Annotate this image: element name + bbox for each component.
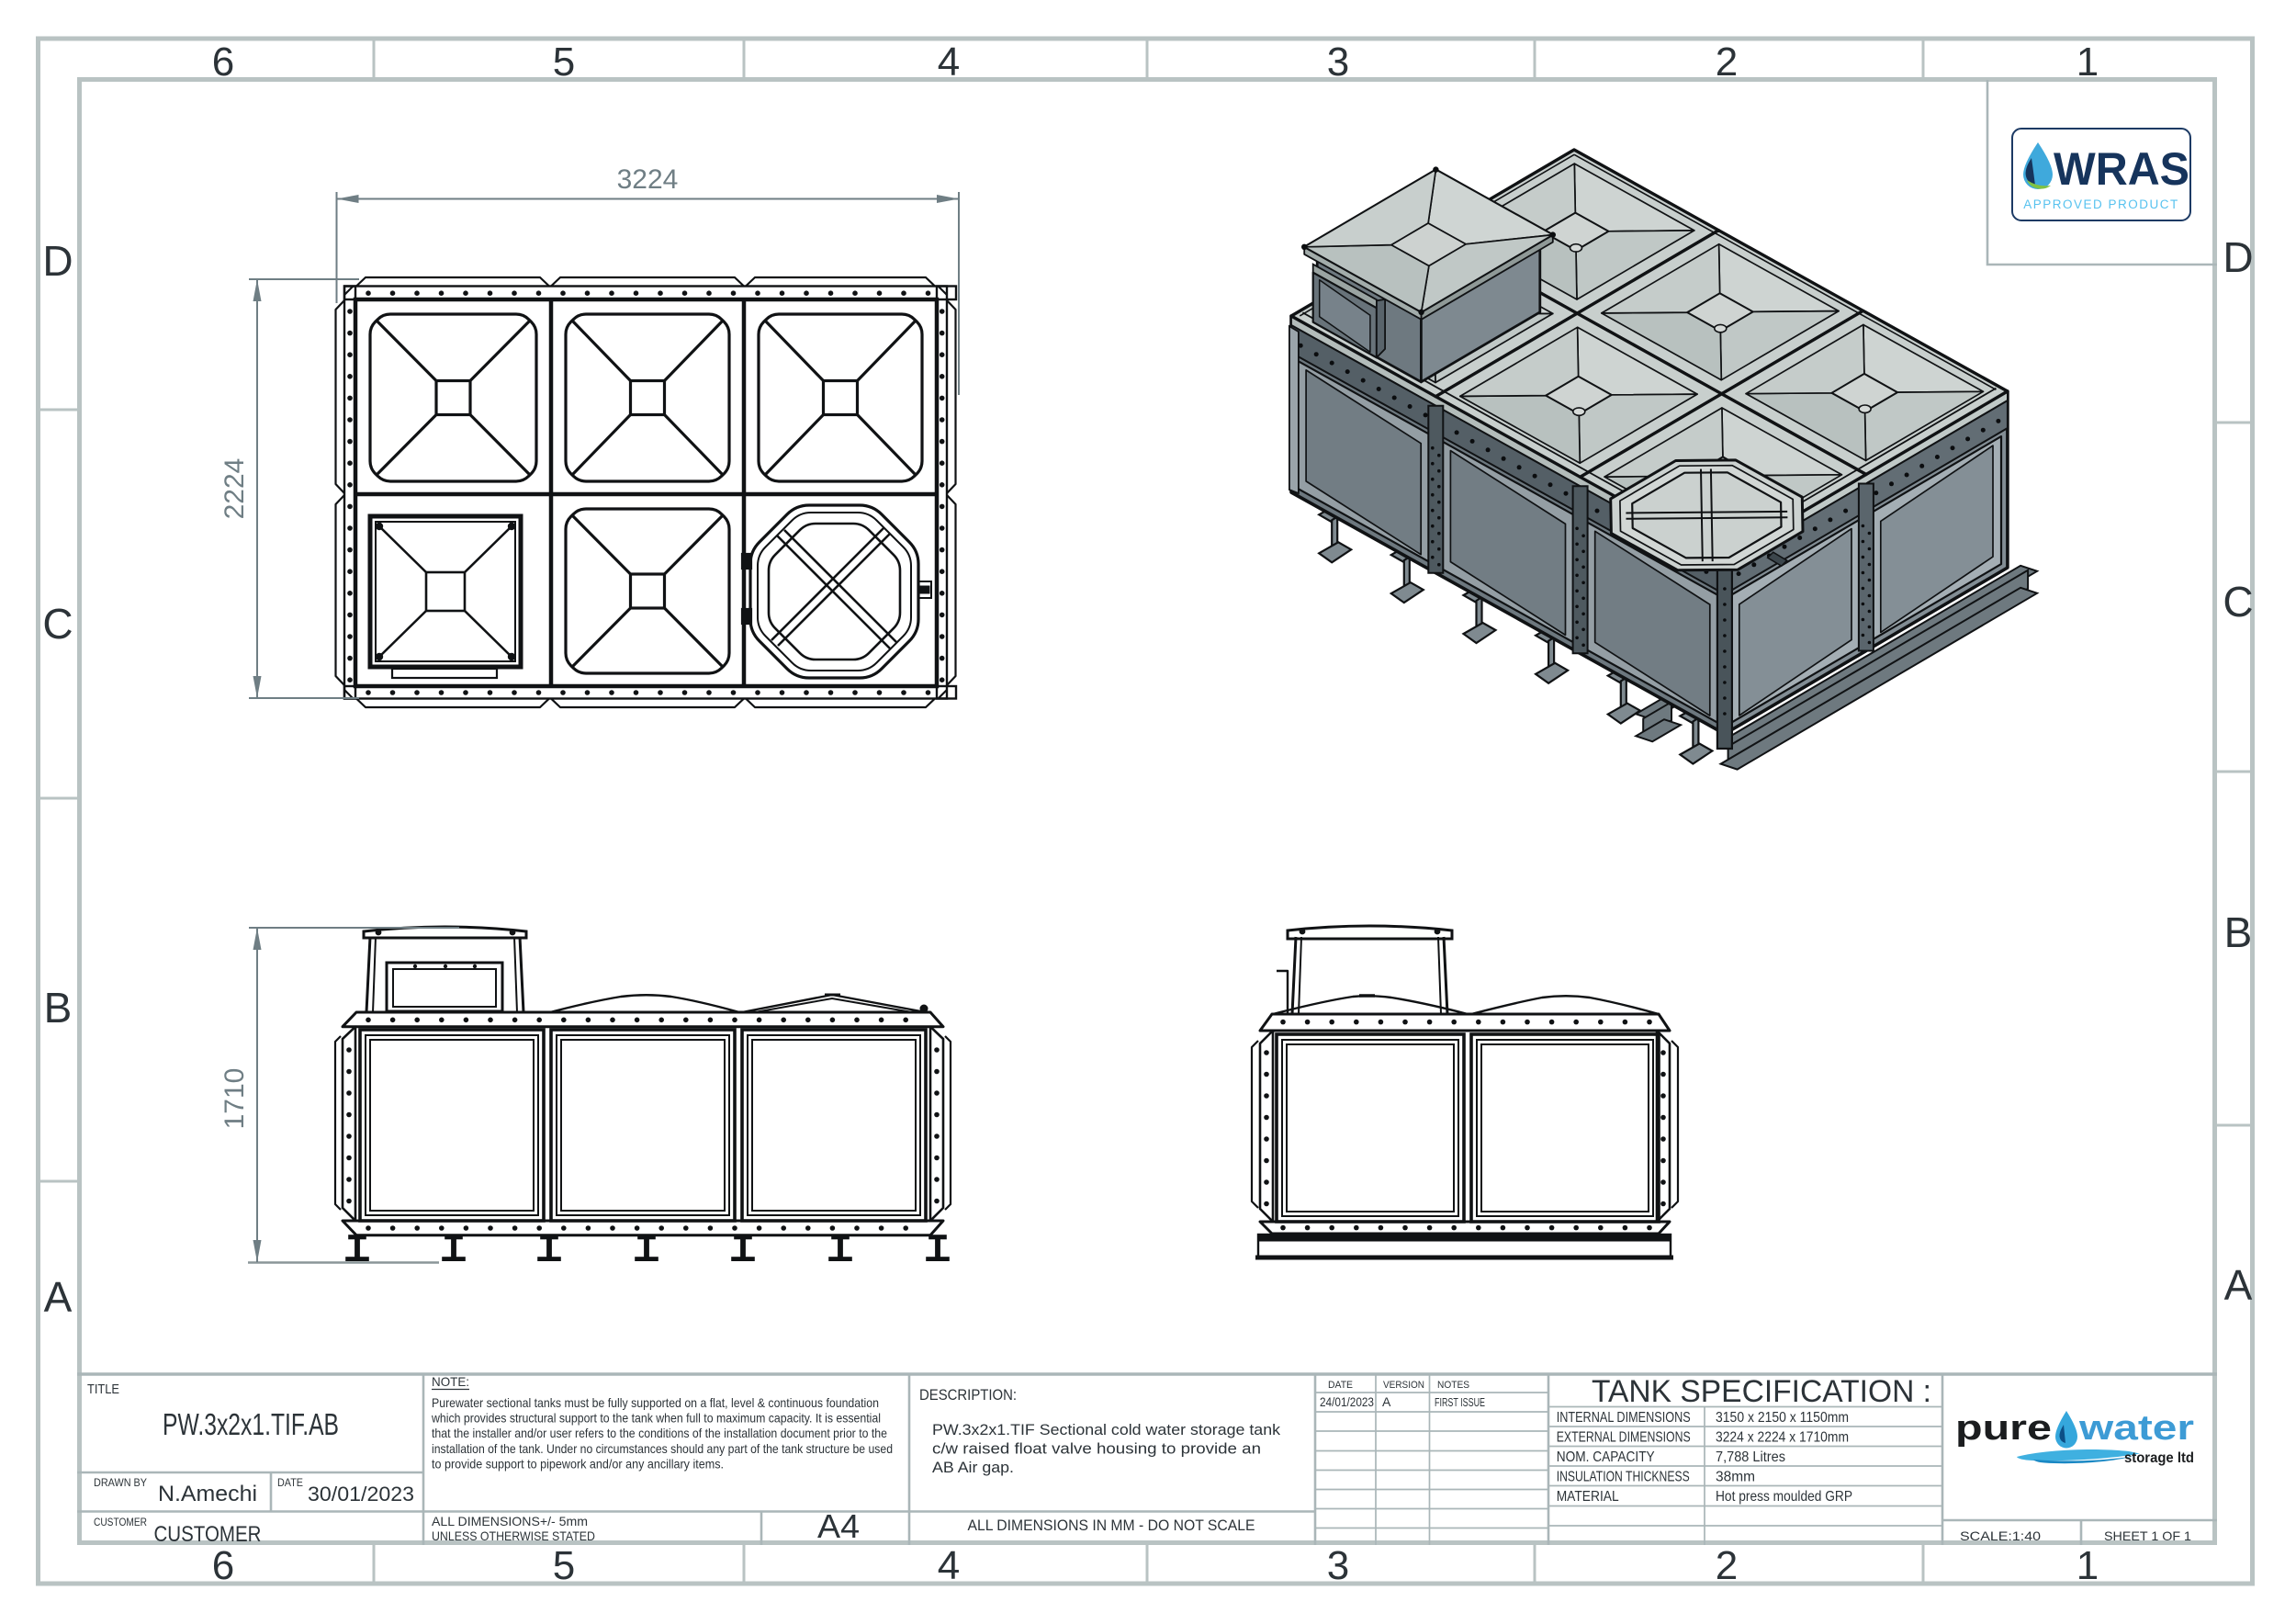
svg-text:1: 1 xyxy=(2077,39,2099,85)
svg-text:CUSTOMER: CUSTOMER xyxy=(154,1522,262,1547)
svg-text:UNLESS OTHERWISE STATED: UNLESS OTHERWISE STATED xyxy=(432,1528,595,1543)
svg-text:A4: A4 xyxy=(817,1507,860,1545)
svg-text:5: 5 xyxy=(553,39,575,85)
svg-text:B: B xyxy=(44,984,73,1032)
svg-text:6: 6 xyxy=(212,39,234,85)
svg-text:D: D xyxy=(2223,233,2253,281)
svg-text:APPROVED PRODUCT: APPROVED PRODUCT xyxy=(2023,197,2179,211)
svg-text:Purewater sectional tanks must: Purewater sectional tanks must be fully … xyxy=(432,1395,879,1410)
svg-text:installation of the tank. Unde: installation of the tank. Under no circu… xyxy=(432,1441,893,1456)
svg-text:24/01/2023: 24/01/2023 xyxy=(1320,1394,1374,1409)
svg-text:PW.3x2x1.TIF.AB: PW.3x2x1.TIF.AB xyxy=(163,1407,339,1441)
svg-text:EXTERNAL DIMENSIONS: EXTERNAL DIMENSIONS xyxy=(1557,1430,1691,1446)
svg-text:5: 5 xyxy=(553,1543,575,1588)
svg-text:c/w raised float valve housing: c/w raised float valve housing to provid… xyxy=(932,1440,1261,1458)
svg-text:AB Air gap.: AB Air gap. xyxy=(932,1459,1014,1476)
svg-text:to provide support to pipework: to provide support to pipework and/or an… xyxy=(432,1456,724,1471)
svg-text:4: 4 xyxy=(938,1543,960,1588)
svg-text:DATE: DATE xyxy=(277,1476,303,1489)
svg-text:A: A xyxy=(1382,1394,1391,1409)
svg-text:4: 4 xyxy=(938,39,960,85)
svg-text:NOTES: NOTES xyxy=(1437,1380,1469,1391)
svg-text:SHEET 1 OF 1: SHEET 1 OF 1 xyxy=(2104,1528,2191,1543)
svg-text:30/01/2023: 30/01/2023 xyxy=(308,1483,414,1506)
svg-text:FIRST ISSUE: FIRST ISSUE xyxy=(1435,1395,1485,1409)
svg-text:which provides structural supp: which provides structural support to the… xyxy=(431,1411,881,1426)
svg-text:ALL DIMENSIONS IN MM - DO NOT: ALL DIMENSIONS IN MM - DO NOT SCALE xyxy=(968,1517,1255,1534)
svg-text:A: A xyxy=(44,1273,73,1321)
svg-text:water: water xyxy=(2078,1409,2195,1448)
svg-text:that the installer and/or user: that the installer and/or user refers to… xyxy=(432,1426,887,1440)
svg-text:A: A xyxy=(2224,1261,2253,1309)
svg-text:storage ltd: storage ltd xyxy=(2124,1450,2194,1466)
svg-text:PW.3x2x1.TIF Sectional cold wa: PW.3x2x1.TIF Sectional cold water storag… xyxy=(932,1421,1281,1438)
svg-text:6: 6 xyxy=(212,1543,234,1588)
svg-text:TITLE: TITLE xyxy=(87,1382,119,1397)
svg-text:Hot press moulded GRP: Hot press moulded GRP xyxy=(1716,1489,1852,1505)
svg-text:1710: 1710 xyxy=(219,1068,250,1130)
svg-text:WRAS: WRAS xyxy=(2054,143,2189,195)
svg-text:INTERNAL DIMENSIONS: INTERNAL DIMENSIONS xyxy=(1557,1410,1691,1426)
svg-text:NOTE:: NOTE: xyxy=(432,1374,469,1389)
svg-text:pure: pure xyxy=(1955,1409,2052,1448)
svg-text:CUSTOMER: CUSTOMER xyxy=(94,1516,147,1528)
svg-text:SCALE:1:40: SCALE:1:40 xyxy=(1960,1528,2041,1543)
svg-text:7,788 Litres: 7,788 Litres xyxy=(1716,1449,1785,1465)
svg-text:VERSION: VERSION xyxy=(1383,1380,1424,1391)
svg-text:3: 3 xyxy=(1327,1543,1349,1588)
svg-text:3150 x 2150 x 1150mm: 3150 x 2150 x 1150mm xyxy=(1716,1410,1849,1426)
svg-text:3: 3 xyxy=(1327,39,1349,85)
svg-text:2224: 2224 xyxy=(219,458,250,520)
svg-text:1: 1 xyxy=(2077,1543,2099,1588)
svg-text:TANK SPECIFICATION :: TANK SPECIFICATION : xyxy=(1592,1374,1931,1409)
svg-text:3224: 3224 xyxy=(617,164,679,195)
svg-text:NOM. CAPACITY: NOM. CAPACITY xyxy=(1557,1449,1655,1465)
svg-text:ALL DIMENSIONS+/- 5mm: ALL DIMENSIONS+/- 5mm xyxy=(432,1514,588,1528)
svg-text:3224 x 2224 x 1710mm: 3224 x 2224 x 1710mm xyxy=(1716,1430,1849,1446)
svg-text:D: D xyxy=(42,237,73,285)
svg-text:38mm: 38mm xyxy=(1716,1470,1755,1485)
svg-text:N.Amechi: N.Amechi xyxy=(158,1482,257,1506)
svg-text:DRAWN BY: DRAWN BY xyxy=(94,1476,147,1489)
svg-text:B: B xyxy=(2224,908,2253,956)
svg-text:INSULATION THICKNESS: INSULATION THICKNESS xyxy=(1557,1470,1690,1485)
svg-text:C: C xyxy=(42,600,73,648)
svg-text:C: C xyxy=(2223,578,2253,626)
svg-text:2: 2 xyxy=(1716,39,1738,85)
svg-text:2: 2 xyxy=(1716,1543,1738,1588)
svg-text:MATERIAL: MATERIAL xyxy=(1557,1489,1619,1505)
svg-text:DESCRIPTION:: DESCRIPTION: xyxy=(919,1386,1017,1404)
svg-text:DATE: DATE xyxy=(1328,1380,1353,1391)
